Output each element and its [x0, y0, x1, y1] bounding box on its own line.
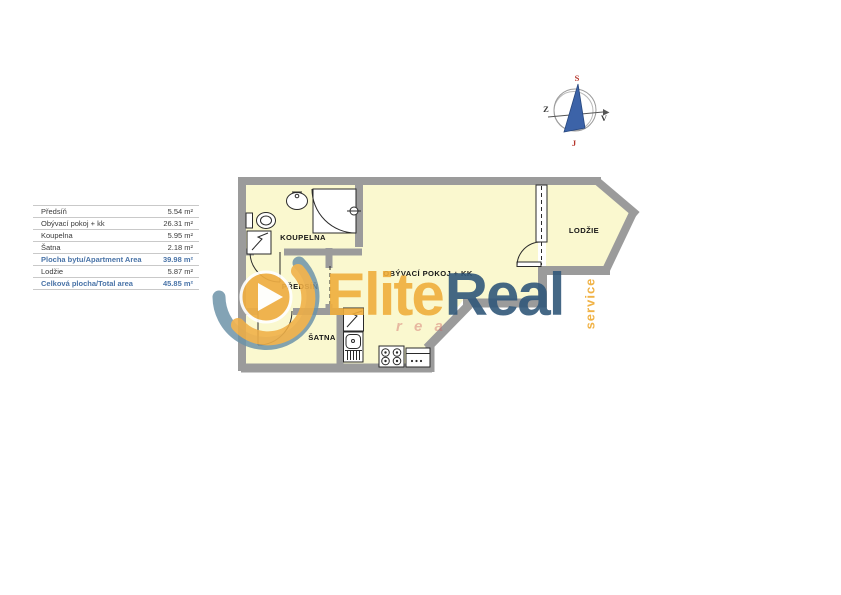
room-area: 5.87 m² [168, 267, 193, 276]
watermark-brand: EliteReal [326, 265, 563, 325]
room-label: Celková plocha/Total area [41, 279, 133, 288]
compass-south-label: J [572, 138, 577, 148]
room-label: Obývací pokoj + kk [41, 219, 105, 228]
area-table: Předsíň 5.54 m² Obývací pokoj + kk 26.31… [33, 205, 199, 290]
compass-west-label: Z [543, 104, 549, 114]
room-label: Plocha bytu/Apartment Area [41, 255, 142, 264]
room-label: Lodžie [41, 267, 63, 276]
table-row-apartment-total: Plocha bytu/Apartment Area 39.98 m² [33, 254, 199, 266]
toilet-icon [246, 213, 276, 229]
watermark-vertical-text: service [583, 254, 598, 354]
room-area: 5.54 m² [168, 207, 193, 216]
compass-rose: S J Z V [535, 66, 615, 150]
table-row: Předsíň 5.54 m² [33, 206, 199, 218]
watermark-faint-text: r e a [396, 318, 447, 335]
room-area: 26.31 m² [163, 219, 193, 228]
table-row: Lodžie 5.87 m² [33, 266, 199, 278]
utility-sink-icon [344, 332, 364, 362]
table-row-grand-total: Celková plocha/Total area 45.85 m² [33, 278, 199, 290]
eliterealservice-logo-icon [205, 237, 330, 362]
room-area: 45.85 m² [163, 279, 193, 288]
room-area: 39.98 m² [163, 255, 193, 264]
sink-icon [287, 192, 308, 210]
table-row: Šatna 2.18 m² [33, 242, 199, 254]
room-label-lodzie: LODŽIE [569, 226, 599, 235]
room-label: Koupelna [41, 231, 73, 240]
floorplan-page: Předsíň 5.54 m² Obývací pokoj + kk 26.31… [0, 0, 841, 595]
compass-east-label: V [601, 113, 608, 123]
room-label: Předsíň [41, 207, 67, 216]
compass-north-label: S [575, 73, 580, 83]
room-area: 5.95 m² [168, 231, 193, 240]
stove-icon [379, 346, 404, 367]
kitchen-counter-icon [406, 348, 430, 367]
entrance-door-icon [312, 189, 361, 233]
table-row: Obývací pokoj + kk 26.31 m² [33, 218, 199, 230]
table-row: Koupelna 5.95 m² [33, 230, 199, 242]
room-area: 2.18 m² [168, 243, 193, 252]
brand-real-text: Real [445, 265, 564, 325]
brand-elite-text: Elite [326, 265, 443, 325]
room-label: Šatna [41, 243, 61, 252]
